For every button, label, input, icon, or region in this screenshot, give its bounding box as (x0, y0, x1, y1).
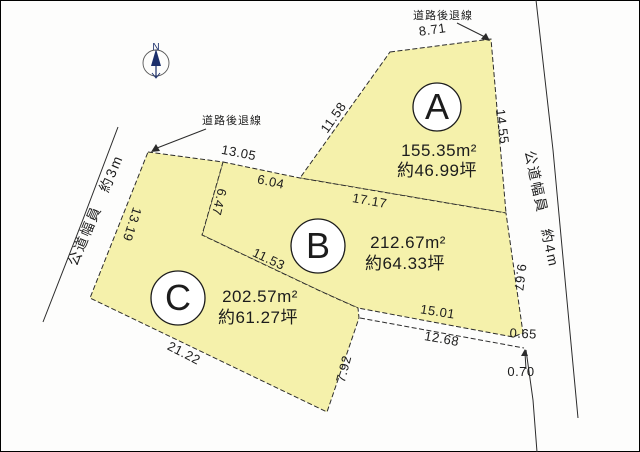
plot-b-letter: B (306, 225, 330, 266)
setback-label-left: 道路後退線 (202, 113, 262, 127)
plot-b-area-m2: 212.67m² (370, 233, 446, 252)
setback-arrow-top (457, 23, 490, 41)
right-road-width-label: 公道幅員 約4m (522, 149, 562, 269)
plot-c-letter: C (165, 277, 191, 318)
dim-corner-gap: 0.65 (509, 325, 537, 341)
plot-a-area-tsubo: 約46.99坪 (397, 161, 477, 180)
plot-a-area-m2: 155.35m² (401, 141, 477, 160)
compass-north-label: N (152, 42, 159, 53)
dim-b-top-left: 13.05 (220, 142, 257, 163)
plot-b-area-tsubo: 約64.33坪 (365, 254, 445, 273)
dim-setback-offset: 0.70 (507, 364, 534, 379)
plot-c-area-tsubo: 約61.27坪 (218, 308, 298, 327)
dim-a-top: 8.71 (418, 20, 447, 39)
plot-a-letter: A (425, 86, 449, 127)
dim-b-right: 9.67 (511, 263, 529, 292)
plot-c-area-m2: 202.57m² (222, 287, 298, 306)
setback-arrow-left (151, 129, 206, 152)
compass: N (143, 42, 169, 78)
dim-setback-bottom: 12.68 (423, 328, 460, 349)
land-plot-diagram: N A B C 155.35m² 約46.99坪 212.67m² 約64.33… (0, 0, 640, 452)
plot-map-canvas: N A B C 155.35m² 約46.99坪 212.67m² 約64.33… (0, 0, 640, 452)
